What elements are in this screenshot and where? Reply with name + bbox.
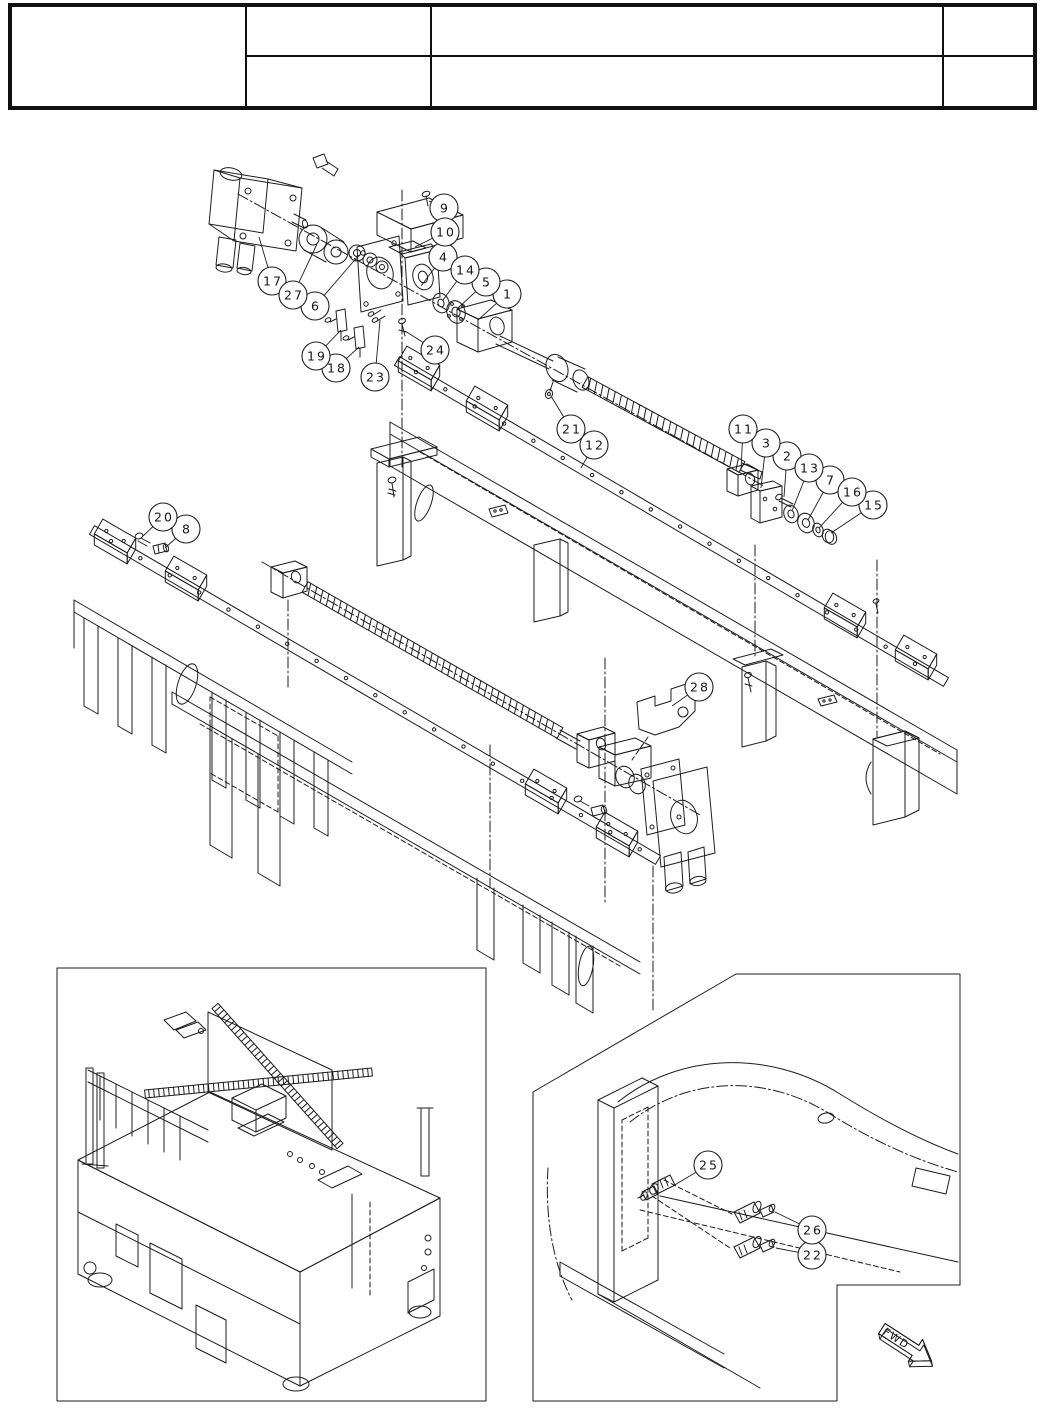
callout-6: 6 (301, 255, 359, 320)
fwd-direction-arrow: FWD (873, 1318, 942, 1377)
svg-text:9: 9 (440, 201, 450, 216)
callout-10: 10 (415, 218, 459, 247)
callout-layer: 1234567891011121314151617181920212223242… (142, 194, 887, 1269)
svg-text:17: 17 (263, 274, 283, 289)
svg-text:6: 6 (311, 299, 321, 314)
callout-22: 22 (776, 1241, 826, 1269)
svg-text:14: 14 (456, 263, 476, 278)
svg-text:16: 16 (843, 485, 863, 500)
page: FWD 123456789101112131415161718192021222… (0, 0, 1045, 1418)
callout-12: 12 (580, 431, 608, 468)
svg-text:13: 13 (800, 461, 820, 476)
svg-text:20: 20 (154, 510, 174, 525)
exploded-view-diagram: FWD 123456789101112131415161718192021222… (0, 0, 1045, 1418)
svg-text:19: 19 (307, 349, 327, 364)
svg-text:27: 27 (284, 288, 304, 303)
svg-text:21: 21 (562, 422, 582, 437)
callout-21: 21 (551, 396, 585, 443)
callout-28: 28 (672, 673, 713, 706)
overview-inset (57, 968, 486, 1401)
svg-text:12: 12 (585, 438, 605, 453)
svg-text:28: 28 (690, 680, 710, 695)
svg-text:4: 4 (439, 250, 449, 265)
svg-text:11: 11 (734, 422, 754, 437)
svg-text:26: 26 (803, 1223, 823, 1238)
svg-text:5: 5 (482, 275, 492, 290)
svg-text:8: 8 (182, 522, 192, 537)
svg-text:25: 25 (699, 1158, 719, 1173)
callout-26: 26 (775, 1212, 826, 1244)
detail-inset: FWD (533, 974, 960, 1401)
svg-text:3: 3 (762, 436, 772, 451)
svg-text:18: 18 (327, 361, 347, 376)
svg-text:23: 23 (366, 370, 386, 385)
callout-23: 23 (361, 320, 389, 391)
svg-text:10: 10 (436, 225, 456, 240)
svg-text:24: 24 (426, 343, 446, 358)
svg-text:1: 1 (503, 287, 513, 302)
fwd-label: FWD (881, 1326, 912, 1352)
svg-text:22: 22 (803, 1248, 823, 1263)
svg-text:2: 2 (783, 449, 793, 464)
svg-text:7: 7 (826, 473, 836, 488)
callout-25: 25 (673, 1151, 722, 1186)
svg-text:15: 15 (864, 498, 884, 513)
